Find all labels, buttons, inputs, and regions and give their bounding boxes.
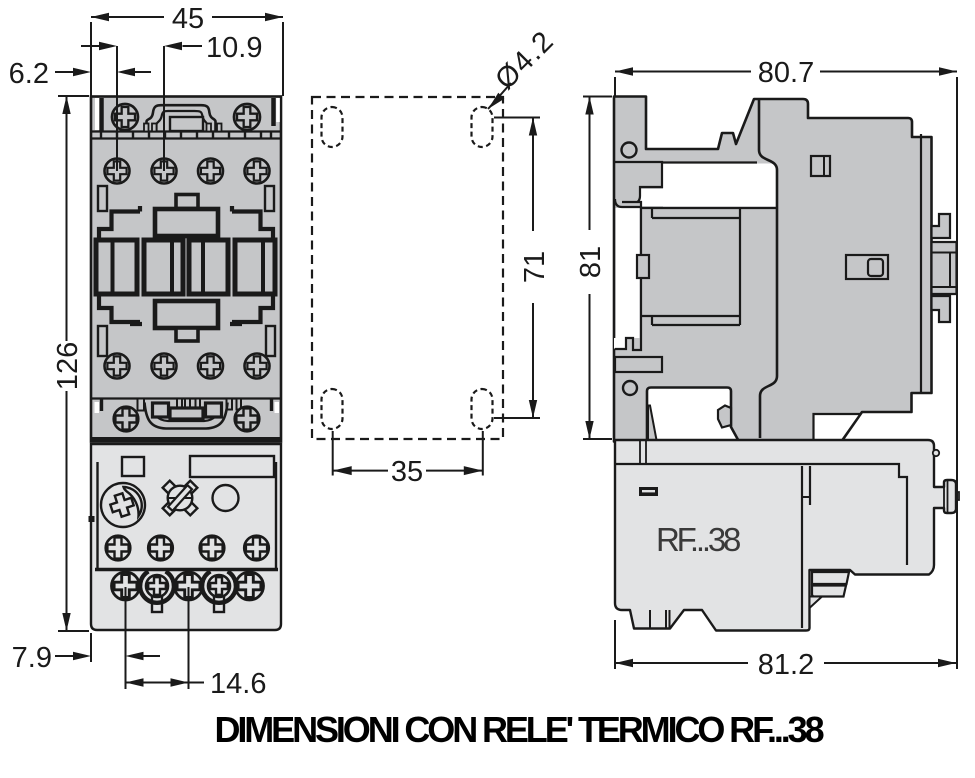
svg-text:10.9: 10.9 (206, 32, 262, 64)
svg-text:81.2: 81.2 (758, 649, 814, 681)
svg-text:DIMENSIONI CON RELE' TERMICO R: DIMENSIONI CON RELE' TERMICO RF...38 (214, 709, 823, 750)
svg-text:RF...38: RF...38 (656, 521, 740, 558)
svg-text:81: 81 (575, 246, 607, 278)
svg-text:71: 71 (519, 251, 551, 283)
svg-text:Ø4.2: Ø4.2 (489, 25, 560, 96)
svg-text:7.9: 7.9 (12, 642, 52, 674)
svg-text:80.7: 80.7 (758, 57, 814, 89)
svg-text:6.2: 6.2 (9, 58, 49, 90)
svg-text:14.6: 14.6 (210, 668, 266, 700)
svg-text:126: 126 (52, 342, 84, 390)
svg-text:45: 45 (172, 3, 204, 35)
svg-text:35: 35 (391, 456, 423, 488)
